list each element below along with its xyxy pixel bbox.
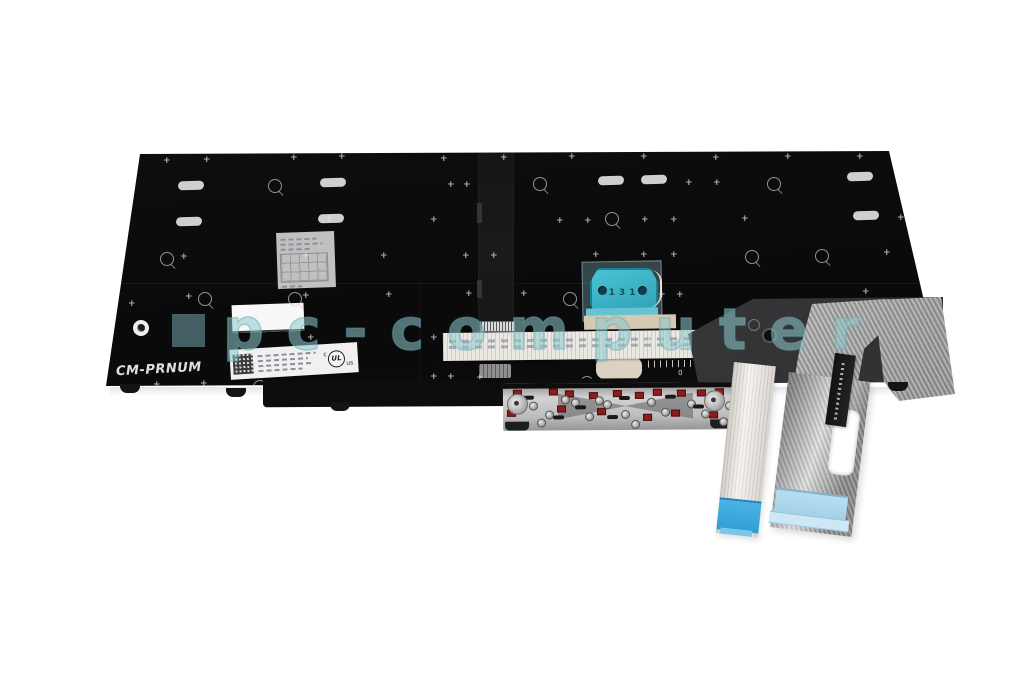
alignment-cross-mark: + bbox=[380, 252, 388, 261]
mounting-slot bbox=[598, 176, 624, 186]
alignment-cross-mark: + bbox=[640, 251, 648, 260]
alignment-cross-mark: + bbox=[712, 154, 720, 163]
mechanism-slot bbox=[575, 405, 586, 409]
screw-circle-mark bbox=[745, 250, 759, 264]
part-marking: CM-PRNUM bbox=[116, 360, 202, 379]
grommet bbox=[133, 320, 149, 336]
screw-circle-mark bbox=[288, 292, 302, 306]
blank-sticker bbox=[232, 303, 305, 333]
ruler-number: 0 bbox=[678, 369, 683, 377]
alignment-cross-mark: + bbox=[670, 216, 678, 225]
alignment-cross-mark: + bbox=[584, 217, 592, 226]
label-text-line bbox=[258, 367, 302, 372]
qr-code-icon bbox=[233, 354, 254, 375]
keyboard-flex-cable bbox=[770, 372, 870, 537]
label-text-block bbox=[256, 348, 320, 375]
alignment-cross-mark: + bbox=[568, 153, 576, 162]
ul-c-text: c bbox=[323, 350, 327, 357]
ruler-number: 8 bbox=[873, 366, 878, 374]
alignment-cross-mark: + bbox=[338, 153, 346, 162]
ul-logo-icon: UL bbox=[327, 349, 345, 367]
screw-circle-mark bbox=[815, 249, 829, 263]
hinge-cam bbox=[704, 390, 725, 411]
channel-pin-connector bbox=[480, 321, 515, 332]
key-contact-pad bbox=[557, 405, 566, 412]
mechanism-screw bbox=[603, 400, 612, 409]
label-text-line bbox=[258, 361, 313, 366]
screw-circle-mark bbox=[160, 252, 174, 266]
backplate-foot-tab bbox=[226, 388, 246, 397]
alignment-cross-mark: + bbox=[185, 293, 193, 302]
alignment-cross-mark: + bbox=[885, 370, 893, 379]
trackpoint-foam-pad bbox=[584, 314, 676, 330]
screw-circle-mark bbox=[767, 177, 781, 191]
mounting-slot bbox=[847, 172, 873, 182]
trackpoint-screw-hole bbox=[598, 286, 607, 295]
alignment-cross-mark: + bbox=[883, 249, 891, 258]
key-contact-pad bbox=[653, 389, 662, 396]
mounting-slot bbox=[641, 175, 667, 185]
alignment-cross-mark: + bbox=[920, 367, 928, 376]
alignment-cross-mark: + bbox=[163, 157, 171, 166]
alignment-cross-mark: + bbox=[641, 216, 649, 225]
alignment-cross-mark: + bbox=[713, 179, 721, 188]
mechanism-tab bbox=[505, 422, 529, 431]
alignment-cross-mark: + bbox=[592, 251, 600, 260]
alignment-cross-mark: + bbox=[897, 214, 905, 223]
channel-bracket bbox=[477, 280, 482, 298]
mounting-slot bbox=[176, 217, 202, 227]
screw-circle-mark bbox=[268, 179, 282, 193]
mechanism-screw bbox=[631, 420, 640, 429]
key-contact-pad bbox=[597, 408, 606, 415]
screw-circle-mark bbox=[563, 292, 577, 306]
mechanism-screw bbox=[561, 395, 570, 404]
mechanism-screw bbox=[661, 408, 670, 417]
alignment-cross-mark: + bbox=[128, 300, 136, 309]
backlight-ribbon-cable bbox=[443, 329, 776, 361]
label-text-line bbox=[258, 357, 308, 362]
mechanism-screw bbox=[529, 402, 538, 411]
alignment-cross-mark: + bbox=[676, 291, 684, 300]
product-photo-keyboard-back: c UL us CM-PRNUM 131 0148 ++++++++++++++… bbox=[0, 0, 1024, 680]
key-contact-pad bbox=[635, 392, 644, 399]
panel-seam bbox=[110, 283, 940, 284]
mounting-slot bbox=[178, 181, 204, 191]
alignment-cross-mark: + bbox=[670, 251, 678, 260]
alignment-cross-mark: + bbox=[463, 181, 471, 190]
mechanism-slot bbox=[607, 415, 618, 419]
alignment-cross-mark: + bbox=[685, 179, 693, 188]
screw-circle-mark bbox=[533, 177, 547, 191]
alignment-cross-mark: + bbox=[180, 253, 188, 262]
mechanism-slot bbox=[665, 395, 676, 399]
alignment-cross-mark: + bbox=[430, 216, 438, 225]
mechanism-slot bbox=[553, 415, 564, 419]
backplate-foot-tab bbox=[888, 382, 908, 391]
mechanism-screw bbox=[537, 419, 546, 428]
label-text-line bbox=[282, 285, 302, 288]
mounting-slot bbox=[853, 211, 879, 221]
ruler-number: 1 bbox=[706, 369, 711, 377]
alignment-cross-mark: + bbox=[658, 291, 666, 300]
alignment-cross-mark: + bbox=[430, 334, 438, 343]
backplate-foot-tab bbox=[330, 402, 350, 411]
mechanism-slot bbox=[693, 404, 704, 408]
alignment-cross-mark: + bbox=[520, 290, 528, 299]
label-text-line bbox=[280, 242, 322, 245]
backplate-foot-tab bbox=[120, 384, 140, 393]
key-contact-pad bbox=[643, 414, 652, 421]
panel-seam bbox=[419, 283, 420, 386]
label-text-line bbox=[280, 238, 316, 241]
ul-us-text: us bbox=[346, 359, 353, 366]
screw-circle-mark bbox=[198, 292, 212, 306]
key-contact-pad bbox=[549, 388, 558, 395]
alignment-cross-mark: + bbox=[640, 153, 648, 162]
mechanism-screw bbox=[621, 410, 630, 419]
hinge-cam bbox=[507, 394, 528, 415]
cable-part-number-text bbox=[834, 360, 845, 420]
key-contact-pad bbox=[709, 411, 718, 418]
ribbon-printed-text bbox=[449, 342, 736, 349]
key-contact-pad bbox=[677, 390, 686, 397]
alignment-cross-mark: + bbox=[385, 291, 393, 300]
alignment-cross-mark: + bbox=[302, 292, 310, 301]
ul-certification-mark: c UL us bbox=[323, 349, 355, 368]
shield-screw bbox=[762, 328, 777, 343]
alignment-cross-mark: + bbox=[784, 153, 792, 162]
screw-circle-mark bbox=[605, 212, 619, 226]
key-mechanism-strip bbox=[503, 382, 745, 431]
alignment-cross-mark: + bbox=[302, 252, 310, 261]
keyboard-backplate: c UL us CM-PRNUM 131 0148 ++++++++++++++… bbox=[0, 0, 1024, 680]
alignment-cross-mark: + bbox=[290, 154, 298, 163]
mechanism-slot bbox=[619, 396, 630, 400]
mechanism-strip-edge bbox=[503, 382, 745, 389]
alignment-cross-mark: + bbox=[465, 290, 473, 299]
alignment-cross-mark: + bbox=[645, 337, 653, 346]
barcode-label: c UL us bbox=[229, 342, 359, 380]
alignment-cross-mark: + bbox=[856, 153, 864, 162]
trackpoint-cable-channel bbox=[478, 153, 514, 333]
alignment-cross-mark: + bbox=[462, 252, 470, 261]
alignment-cross-mark: + bbox=[440, 155, 448, 164]
mechanism-screw bbox=[647, 398, 656, 407]
alignment-cross-mark: + bbox=[307, 334, 315, 343]
alignment-cross-mark: + bbox=[447, 181, 455, 190]
alignment-cross-mark: + bbox=[741, 215, 749, 224]
alignment-cross-mark: + bbox=[490, 252, 498, 261]
mechanism-screw bbox=[595, 396, 604, 405]
alignment-cross-mark: + bbox=[325, 215, 333, 224]
alignment-cross-mark: + bbox=[862, 288, 870, 297]
cable-fold-connector bbox=[479, 364, 511, 378]
alignment-cross-mark: + bbox=[203, 156, 211, 165]
alignment-cross-mark: + bbox=[556, 217, 564, 226]
mechanism-screw bbox=[701, 409, 710, 418]
trackpoint-marking: 131 bbox=[609, 288, 640, 298]
key-contact-pad bbox=[671, 410, 680, 417]
mounting-slot bbox=[320, 178, 346, 188]
shield-circle-mark bbox=[748, 319, 760, 331]
mechanism-screw bbox=[585, 412, 594, 421]
alignment-cross-mark: + bbox=[500, 154, 508, 163]
channel-bracket bbox=[477, 203, 482, 223]
